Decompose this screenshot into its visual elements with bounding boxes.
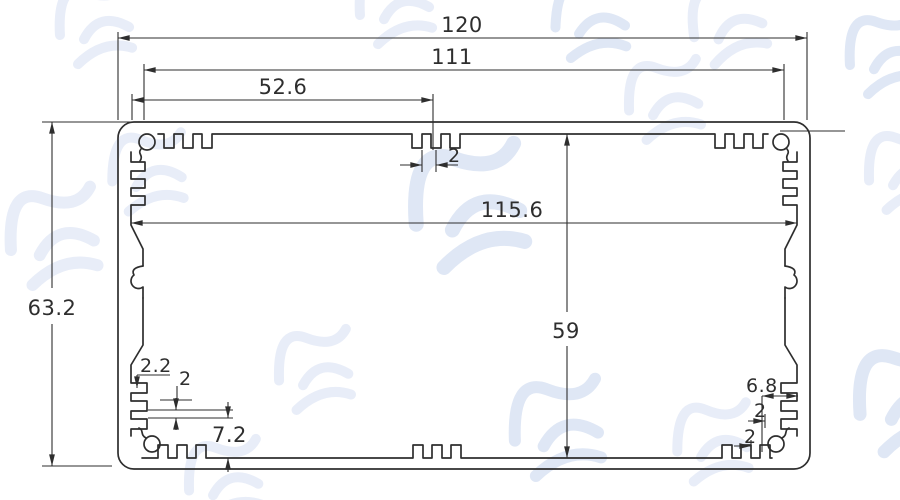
profile-right-screw-slot [785,266,797,298]
screw-boss-top-right-channel [787,149,789,161]
dimension-value: 7.2 [212,423,247,447]
extrusion-profile-drawing: 120 111 52.6 2 115.6 [0,0,900,500]
dim-detail-bottom-right: 6.8 2 2 [734,375,798,452]
watermark-mark [265,315,371,418]
watermark-mark [544,0,647,67]
dimension-value: 2 [448,145,461,167]
watermark-mark [840,327,900,463]
watermark-mark [0,171,121,296]
screw-boss-top-left-channel [140,149,142,161]
watermark-mark [498,363,625,487]
screw-boss-top-right [773,134,789,150]
watermark-mark [855,115,900,218]
dimension-value: 2 [754,400,767,422]
cad-drawing-canvas: 120 111 52.6 2 115.6 [0,0,900,500]
watermark-mark [835,0,900,103]
dimension-value: 6.8 [746,375,778,397]
dimension-value: 52.6 [259,75,308,99]
dimension-value: 63.2 [28,296,77,320]
profile-right-wall-upper [783,152,797,266]
dim-inner-height: 59 [552,134,580,458]
dimension-value: 120 [441,13,483,37]
dimension-value: 115.6 [481,198,544,222]
profile-outer-contour [118,122,810,469]
profile-geometry [118,122,810,469]
watermark-mark [99,119,204,221]
watermark-mark [45,0,152,73]
dimension-value: 2 [744,426,757,448]
dimensions-layer: 120 111 52.6 2 115.6 [28,13,845,472]
profile-inner-top [158,134,768,148]
profile-right-wall-lower [781,298,797,436]
profile-left-screw-slot [131,266,143,298]
dimension-value: 2.2 [140,355,172,377]
dimension-value: 111 [431,45,473,69]
dimension-value: 59 [552,319,580,343]
dimension-value: 2 [179,368,192,390]
dim-width-111: 111 [144,45,784,120]
